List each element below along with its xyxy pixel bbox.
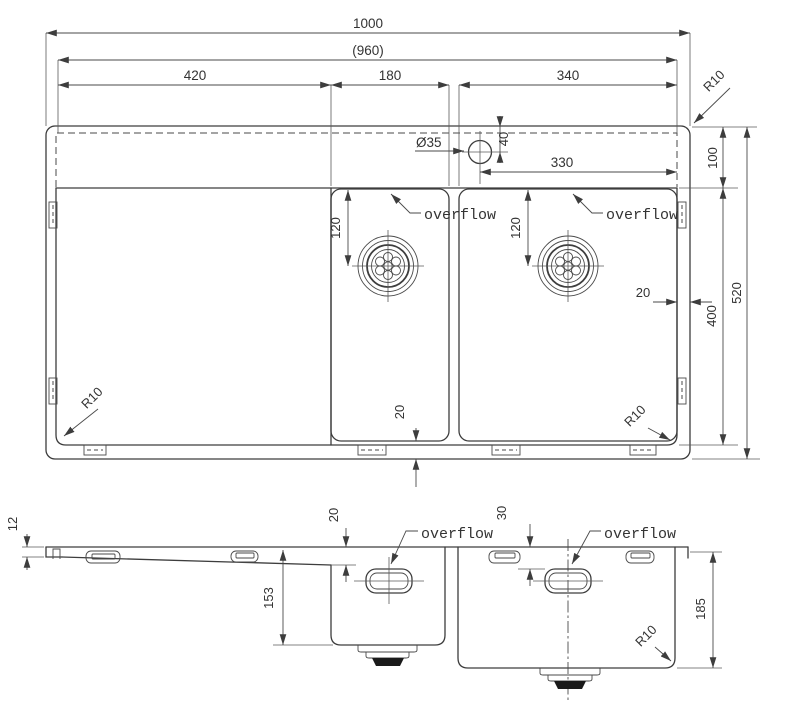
top-view: 1000 (960) 420 180 340 Ø35 40 330 [46,16,760,487]
dim-faucet-diameter: Ø35 [416,135,442,150]
dim-rim-thickness: 12 [5,517,20,531]
right-bowl-outline [459,189,677,441]
middle-bowl-section [331,547,445,645]
sink-technical-drawing: 1000 (960) 420 180 340 Ø35 40 330 [0,0,800,710]
radius-label-top-right: R10 [700,67,727,94]
right-bowl-section [458,547,675,668]
drain-fitting-middle [358,645,417,666]
dimensions-faucet: Ø35 40 330 [415,116,677,172]
mounting-clips [49,202,686,455]
drawing-sheet: 1000 (960) 420 180 340 Ø35 40 330 [0,0,800,710]
sink-outer-edge [46,126,690,459]
cutout-dashed-line [56,133,677,187]
middle-bowl-outline [331,189,449,441]
dim-overall-width: 1000 [353,16,383,31]
drainboard-slope [62,557,331,565]
radius-label-bottom-left: R10 [78,384,105,411]
dim-right-rim-gap: 20 [636,285,650,300]
dim-right-bowl-depth: 185 [693,598,708,620]
overflow-callouts-top-view: overflow overflow [391,194,678,224]
groove-profiles [86,551,654,563]
section-view: 12 20 30 153 185 [5,506,722,702]
dimensions-drains: 120 120 [328,190,528,266]
drain-right-bowl [532,230,604,302]
dim-middle-bowl-depth: 153 [261,587,276,609]
drain-fitting-right [540,668,600,689]
drain-middle-bowl [352,230,424,302]
dimensions-right: 100 400 520 20 [636,127,760,459]
dim-ledge-depth: 100 [705,147,720,169]
dim-bottom-rim-gap: 20 [392,405,407,419]
dim-cutout-width: (960) [352,43,384,58]
dim-faucet-offset-top: 40 [496,132,511,146]
dim-drainboard-width: 420 [184,68,207,83]
dim-right-bowl-width: 340 [557,68,580,83]
radius-label-bottom-right: R10 [621,402,648,429]
dim-right-overflow-drop: 30 [494,506,509,520]
dimension-right-overflow-drop: 30 [494,506,545,586]
dim-drain-offset-right: 120 [508,217,523,239]
dim-bowl-area-depth: 400 [704,305,719,327]
dim-drain-offset-middle: 120 [328,217,343,239]
dim-middle-overflow-drop: 20 [326,508,341,522]
overflow-hole-right [533,569,603,593]
dimension-bottom-gap: 20 [392,405,416,487]
dimension-right-bowl-depth: 185 [677,552,722,668]
dimension-rim-thickness: 12 [5,517,44,570]
radius-label-section: R10 [632,622,659,649]
dimensions-top: 1000 (960) 420 180 340 [46,16,690,186]
dim-middle-bowl-width: 180 [379,68,402,83]
sink-inner-rim [56,188,677,445]
radius-callout-section: R10 [632,622,671,661]
overflow-label-right: overflow [606,207,678,224]
dim-faucet-to-edge: 330 [551,155,574,170]
overflow-label-middle: overflow [424,207,496,224]
overflow-label-section-middle: overflow [421,526,493,543]
radius-callouts-top-view: R10 R10 R10 [64,67,730,440]
overflow-label-section-right: overflow [604,526,676,543]
overflow-hole-middle [354,557,424,604]
dim-overall-depth: 520 [729,282,744,304]
